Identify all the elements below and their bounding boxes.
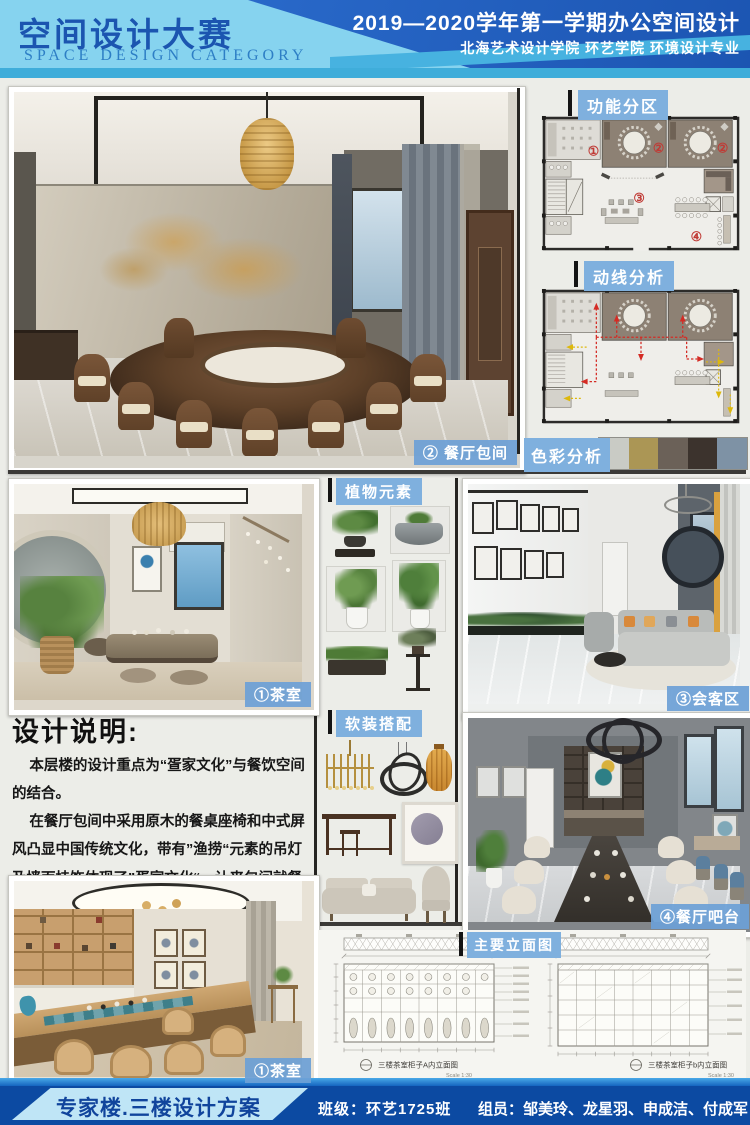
left-art [502, 766, 526, 798]
soft-sofa [322, 872, 416, 922]
certificate-frame [474, 546, 498, 580]
gold-wall-decor [99, 247, 169, 292]
table-settings [594, 850, 600, 856]
functional-zoning-label: 功能分区 [578, 90, 668, 120]
reception-photo: ③会客区 [468, 484, 750, 714]
window [350, 188, 406, 312]
header-school-line: 北海艺术设计学院 环艺学院 环境设计专业 [460, 38, 740, 58]
tea-room-2-photo-frame: ①茶室 [8, 875, 320, 1092]
soft-brass-chandelier [322, 740, 378, 800]
dining-chair [366, 382, 402, 430]
svg-text:①: ① [588, 143, 599, 158]
svg-text:②: ② [653, 140, 664, 155]
tea-chair [54, 1039, 94, 1075]
planter-box [468, 626, 586, 635]
plant-pot [486, 868, 502, 888]
shelf-items [26, 943, 32, 949]
plant-bamboo [326, 566, 386, 632]
blossom-flowers [246, 532, 250, 536]
dining-chair [524, 836, 550, 858]
design-notes-paragraph: 本层楼的设计重点为“疍家文化”与餐饮空间的结合。 [12, 753, 310, 808]
dining-chair [74, 354, 110, 402]
rattan-lantern [240, 118, 294, 190]
footer-project-trapezoid: 专家楼.三楼设计方案 [12, 1088, 308, 1120]
left-art [476, 766, 500, 798]
dining-bar-photo-frame: ④餐厅吧台 [462, 712, 750, 938]
functional-zoning-bar [568, 90, 572, 116]
bar-stool-blue [730, 872, 744, 900]
certificate-frame [500, 548, 522, 580]
door [602, 542, 628, 616]
sofa-pillows [624, 616, 635, 627]
soft-furnishing-bar [328, 710, 332, 734]
dining-chair [336, 318, 366, 358]
photo-label-dining-room: ② 餐厅包间 [414, 440, 517, 465]
certificate-frame [524, 550, 544, 579]
color-swatch-row [598, 437, 748, 470]
dining-chair [410, 354, 446, 402]
color-swatch-5 [717, 438, 747, 469]
bar-stool-blue [714, 864, 728, 890]
window [714, 726, 744, 812]
divider-vertical-right-column [517, 88, 520, 454]
plant-flower-stand [392, 628, 444, 694]
tea-table [106, 634, 218, 663]
color-swatch-3 [658, 438, 688, 469]
dining-chair [242, 408, 278, 456]
wall-frame [182, 961, 206, 989]
photo-label-dining-bar: ④餐厅吧台 [651, 904, 749, 929]
wall-art [132, 546, 162, 592]
right-wall [230, 514, 302, 664]
dining-room-photo: ② 餐厅包间 [14, 92, 520, 468]
certificate-frame [496, 500, 518, 530]
sofa-seat [618, 632, 730, 666]
dining-room-photo-frame: ② 餐厅包间 [8, 86, 526, 474]
certificate-frame [562, 508, 579, 532]
console-legs [271, 989, 273, 1023]
window [684, 734, 714, 808]
chandelier [664, 496, 712, 514]
tea-room-photo: ①茶室 [14, 484, 314, 710]
elevations-label: 主要立面图 [467, 932, 561, 958]
poster-page: 空间设计大赛 SPACE DESIGN CATEGORY 2019—2020学年… [0, 0, 750, 1125]
lazy-susan [200, 342, 350, 388]
certificate-frame [542, 506, 560, 532]
coffee-table [594, 652, 626, 667]
gold-wall-decor [184, 237, 304, 302]
dining-chair [164, 318, 194, 358]
photo-label-tea-room-2: ①茶室 [245, 1058, 311, 1083]
soft-furnishing-label: 软装搭配 [336, 710, 422, 737]
wood-shelving [14, 909, 134, 987]
plants-bar [328, 478, 332, 502]
floor-cushion [120, 668, 156, 683]
track-light [468, 490, 588, 493]
color-swatch-4 [688, 438, 718, 469]
dining-chair [666, 860, 696, 884]
header-term-line: 2019—2020学年第一学期办公空间设计 [353, 7, 740, 37]
circulation-bar [574, 261, 578, 287]
divider-horizontal-1 [8, 470, 746, 474]
dining-chair [502, 886, 536, 914]
tea-set [132, 630, 137, 635]
reception-photo-frame: ③会客区 [462, 478, 750, 720]
svg-text:三楼茶室柜子A内立面图: 三楼茶室柜子A内立面图 [378, 1060, 458, 1070]
left-cabinet [14, 330, 78, 387]
soft-ring-pendant [380, 742, 422, 796]
window [174, 542, 224, 610]
side-counter [694, 836, 740, 850]
plant-bonsai [328, 508, 382, 560]
chandelier-stem [685, 484, 687, 498]
footer-top-strip [0, 1078, 750, 1086]
footer-class-line: 班级：环艺1725班 [318, 1098, 451, 1119]
poster-title-en: SPACE DESIGN CATEGORY [24, 47, 307, 65]
tea-chair [164, 1041, 204, 1075]
dining-chair [118, 382, 154, 430]
tea-chair [210, 1025, 246, 1057]
circulation-plan [541, 288, 741, 426]
certificate-frame [520, 504, 540, 532]
functional-zoning-plan: ① ② ② ③ ④ [541, 115, 741, 253]
screen-panel [478, 247, 502, 361]
header-banner: 空间设计大赛 SPACE DESIGN CATEGORY 2019—2020学年… [0, 0, 750, 78]
plant-stone-water-bowl [390, 506, 450, 554]
tea-room-photo-frame: ①茶室 [8, 478, 320, 716]
soft-console-table [322, 806, 396, 860]
plant-planter-box [326, 646, 388, 678]
certificate-frame [472, 502, 494, 534]
bar-front [564, 818, 644, 836]
console-plant [272, 965, 294, 985]
design-notes-title: 设计说明: [12, 710, 310, 749]
soft-rattan-lantern [426, 744, 452, 794]
color-analysis-label: 色彩分析 [524, 438, 610, 472]
elevations-bar [459, 932, 463, 956]
svg-text:三楼茶室柜子b内立面图: 三楼茶室柜子b内立面图 [648, 1060, 727, 1070]
moon-window [662, 526, 724, 588]
wall-frame [182, 929, 206, 957]
footer-banner: 专家楼.三楼设计方案 班级：环艺1725班 组员：邹美玲、龙星羽、申成洁、付成军 [0, 1078, 750, 1125]
svg-text:③: ③ [633, 191, 644, 206]
dining-bar-photo: ④餐厅吧台 [468, 718, 750, 932]
single-sofa [584, 612, 614, 652]
soft-lounge-chair [420, 866, 452, 924]
svg-text:④: ④ [691, 229, 702, 244]
ring-light-inner [602, 718, 644, 764]
header-cyan-strip [0, 68, 750, 78]
svg-text:②: ② [717, 140, 728, 155]
photo-label-tea-room: ①茶室 [245, 682, 311, 707]
tea-chair [162, 1007, 194, 1035]
circulation-label: 动线分析 [584, 261, 674, 291]
plants-label: 植物元素 [336, 478, 422, 505]
footer-project-title: 专家楼.三楼设计方案 [56, 1092, 261, 1122]
bar-stool-blue [696, 856, 710, 880]
wall-frame [154, 961, 178, 989]
tea-chair [110, 1045, 152, 1079]
certificate-frame [546, 552, 564, 578]
dining-chair [658, 836, 684, 858]
dining-chair [308, 400, 344, 448]
tea-room-2-photo: ①茶室 [14, 881, 314, 1086]
plant-bird-of-paradise [392, 560, 446, 632]
plant [476, 830, 512, 872]
rattan-pendant [132, 502, 186, 546]
color-swatch-2 [629, 438, 659, 469]
floor-cushion [170, 670, 208, 685]
wall-frame [154, 929, 178, 957]
footer-members-line: 组员：邹美玲、龙星羽、申成洁、付成军 [478, 1098, 748, 1119]
photo-label-reception: ③会客区 [667, 686, 749, 711]
wicker-pot [40, 636, 74, 674]
dining-chair [176, 400, 212, 448]
dining-chair [514, 860, 544, 884]
soft-round-artwork [402, 802, 458, 864]
